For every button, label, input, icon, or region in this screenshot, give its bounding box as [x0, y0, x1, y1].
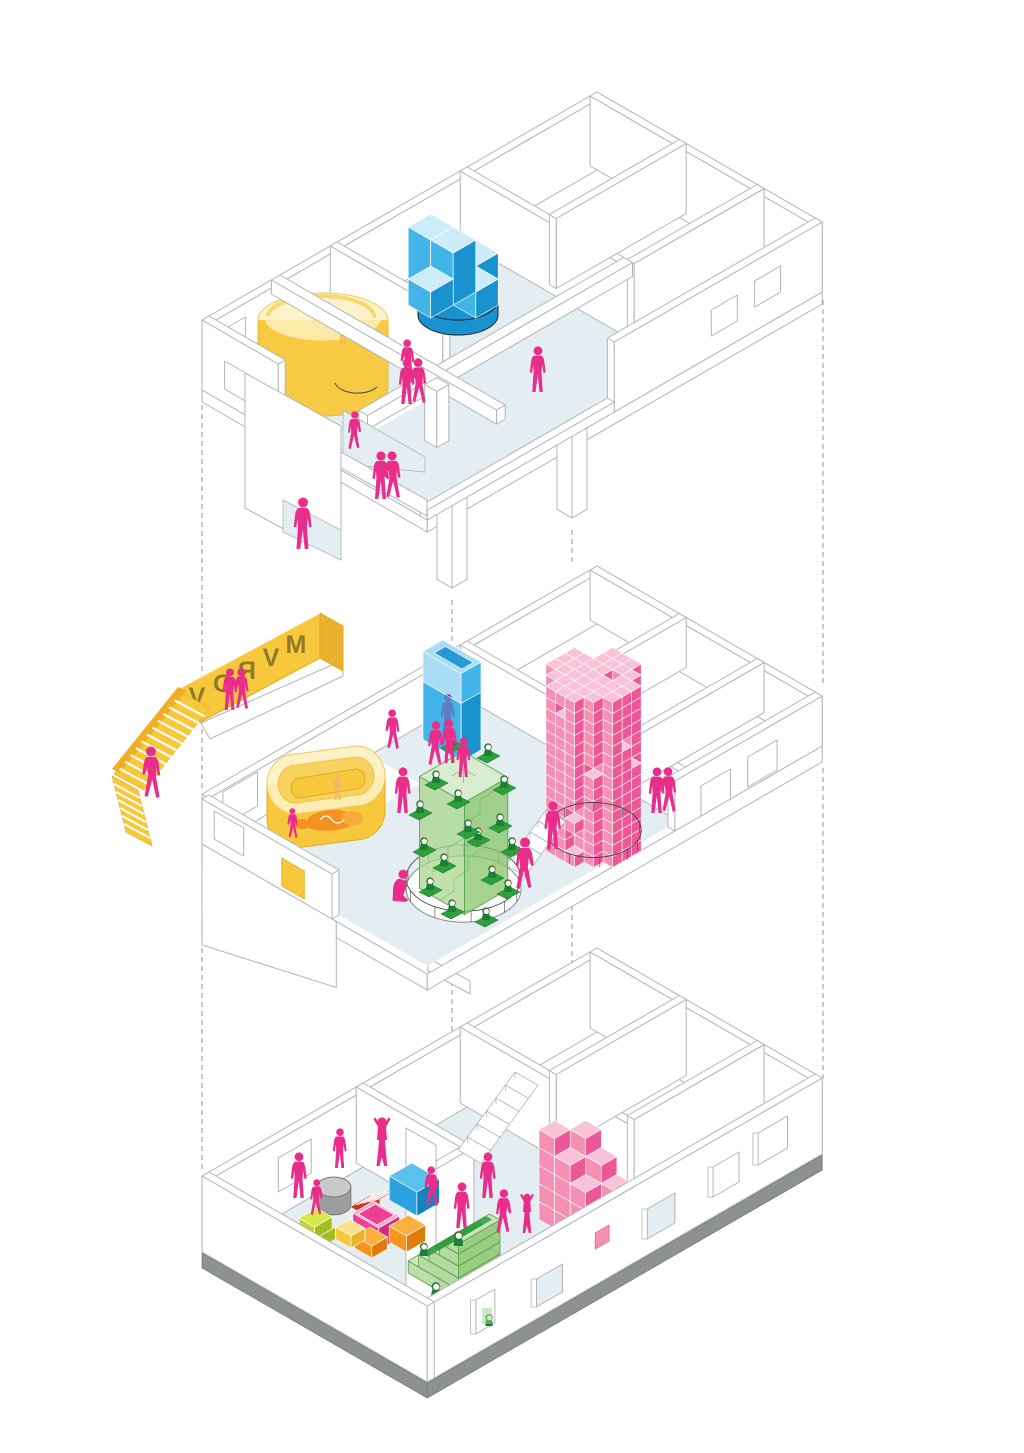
svg-text:V: V — [262, 644, 279, 672]
svg-text:M: M — [286, 631, 307, 659]
